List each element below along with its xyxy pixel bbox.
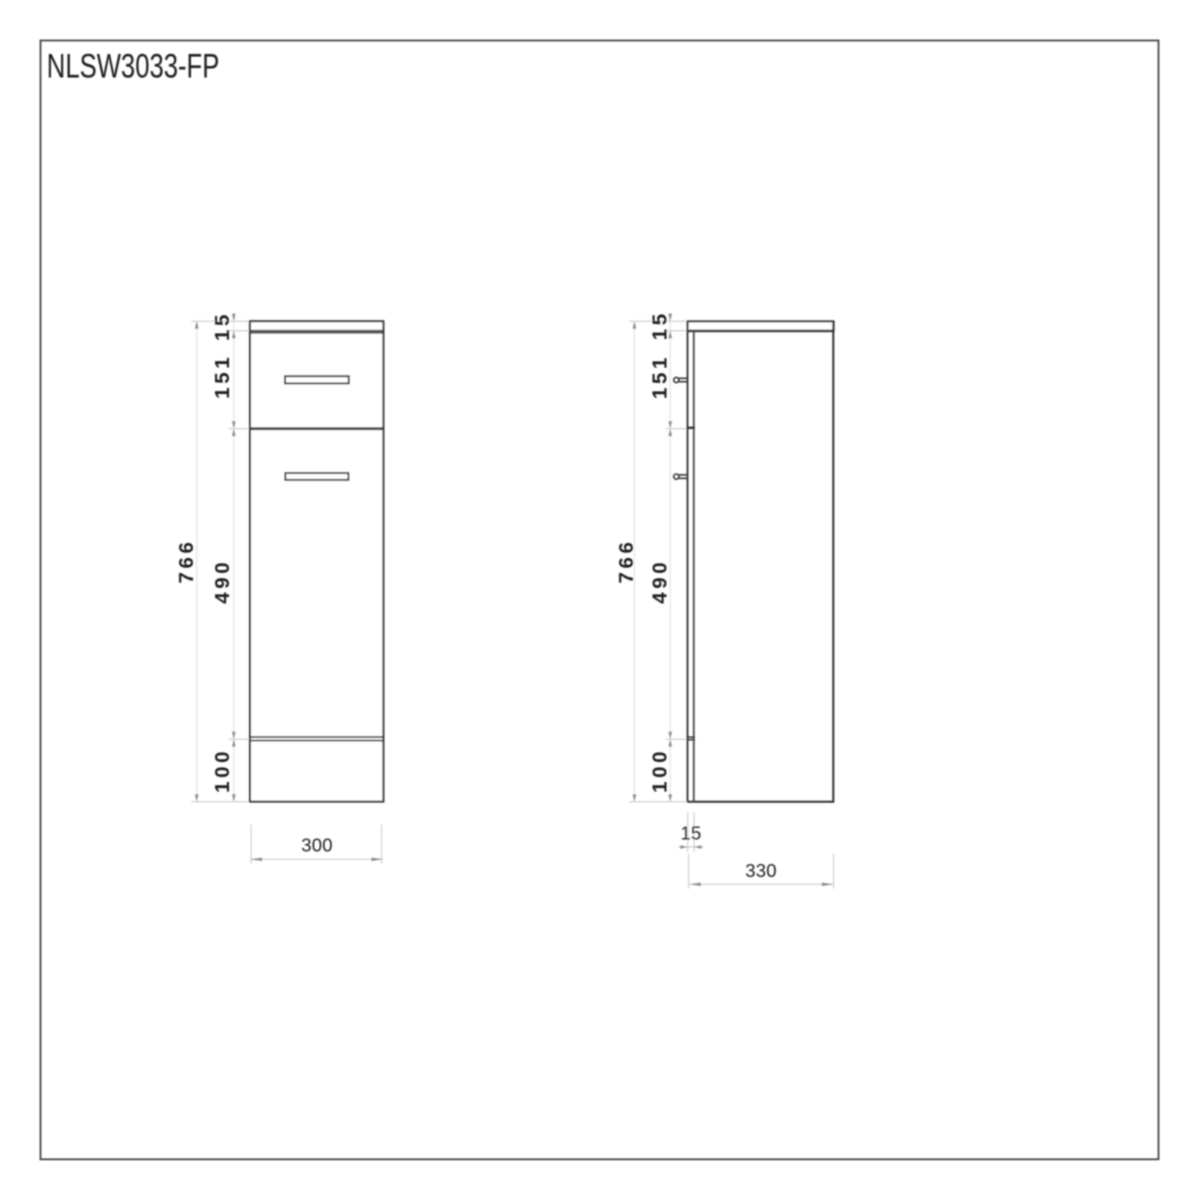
svg-text:330: 330 <box>745 860 776 881</box>
svg-text:100: 100 <box>648 748 671 793</box>
svg-text:766: 766 <box>615 538 638 583</box>
svg-text:15: 15 <box>648 310 671 340</box>
svg-text:300: 300 <box>301 834 332 855</box>
svg-text:15: 15 <box>681 822 702 843</box>
svg-text:100: 100 <box>211 748 234 793</box>
svg-text:490: 490 <box>211 559 234 604</box>
svg-text:490: 490 <box>648 559 671 604</box>
svg-text:15: 15 <box>211 311 234 341</box>
svg-text:766: 766 <box>175 538 198 583</box>
svg-text:151: 151 <box>648 354 671 399</box>
svg-text:151: 151 <box>211 354 234 399</box>
svg-text:NLSW3033-FP: NLSW3033-FP <box>47 47 220 86</box>
